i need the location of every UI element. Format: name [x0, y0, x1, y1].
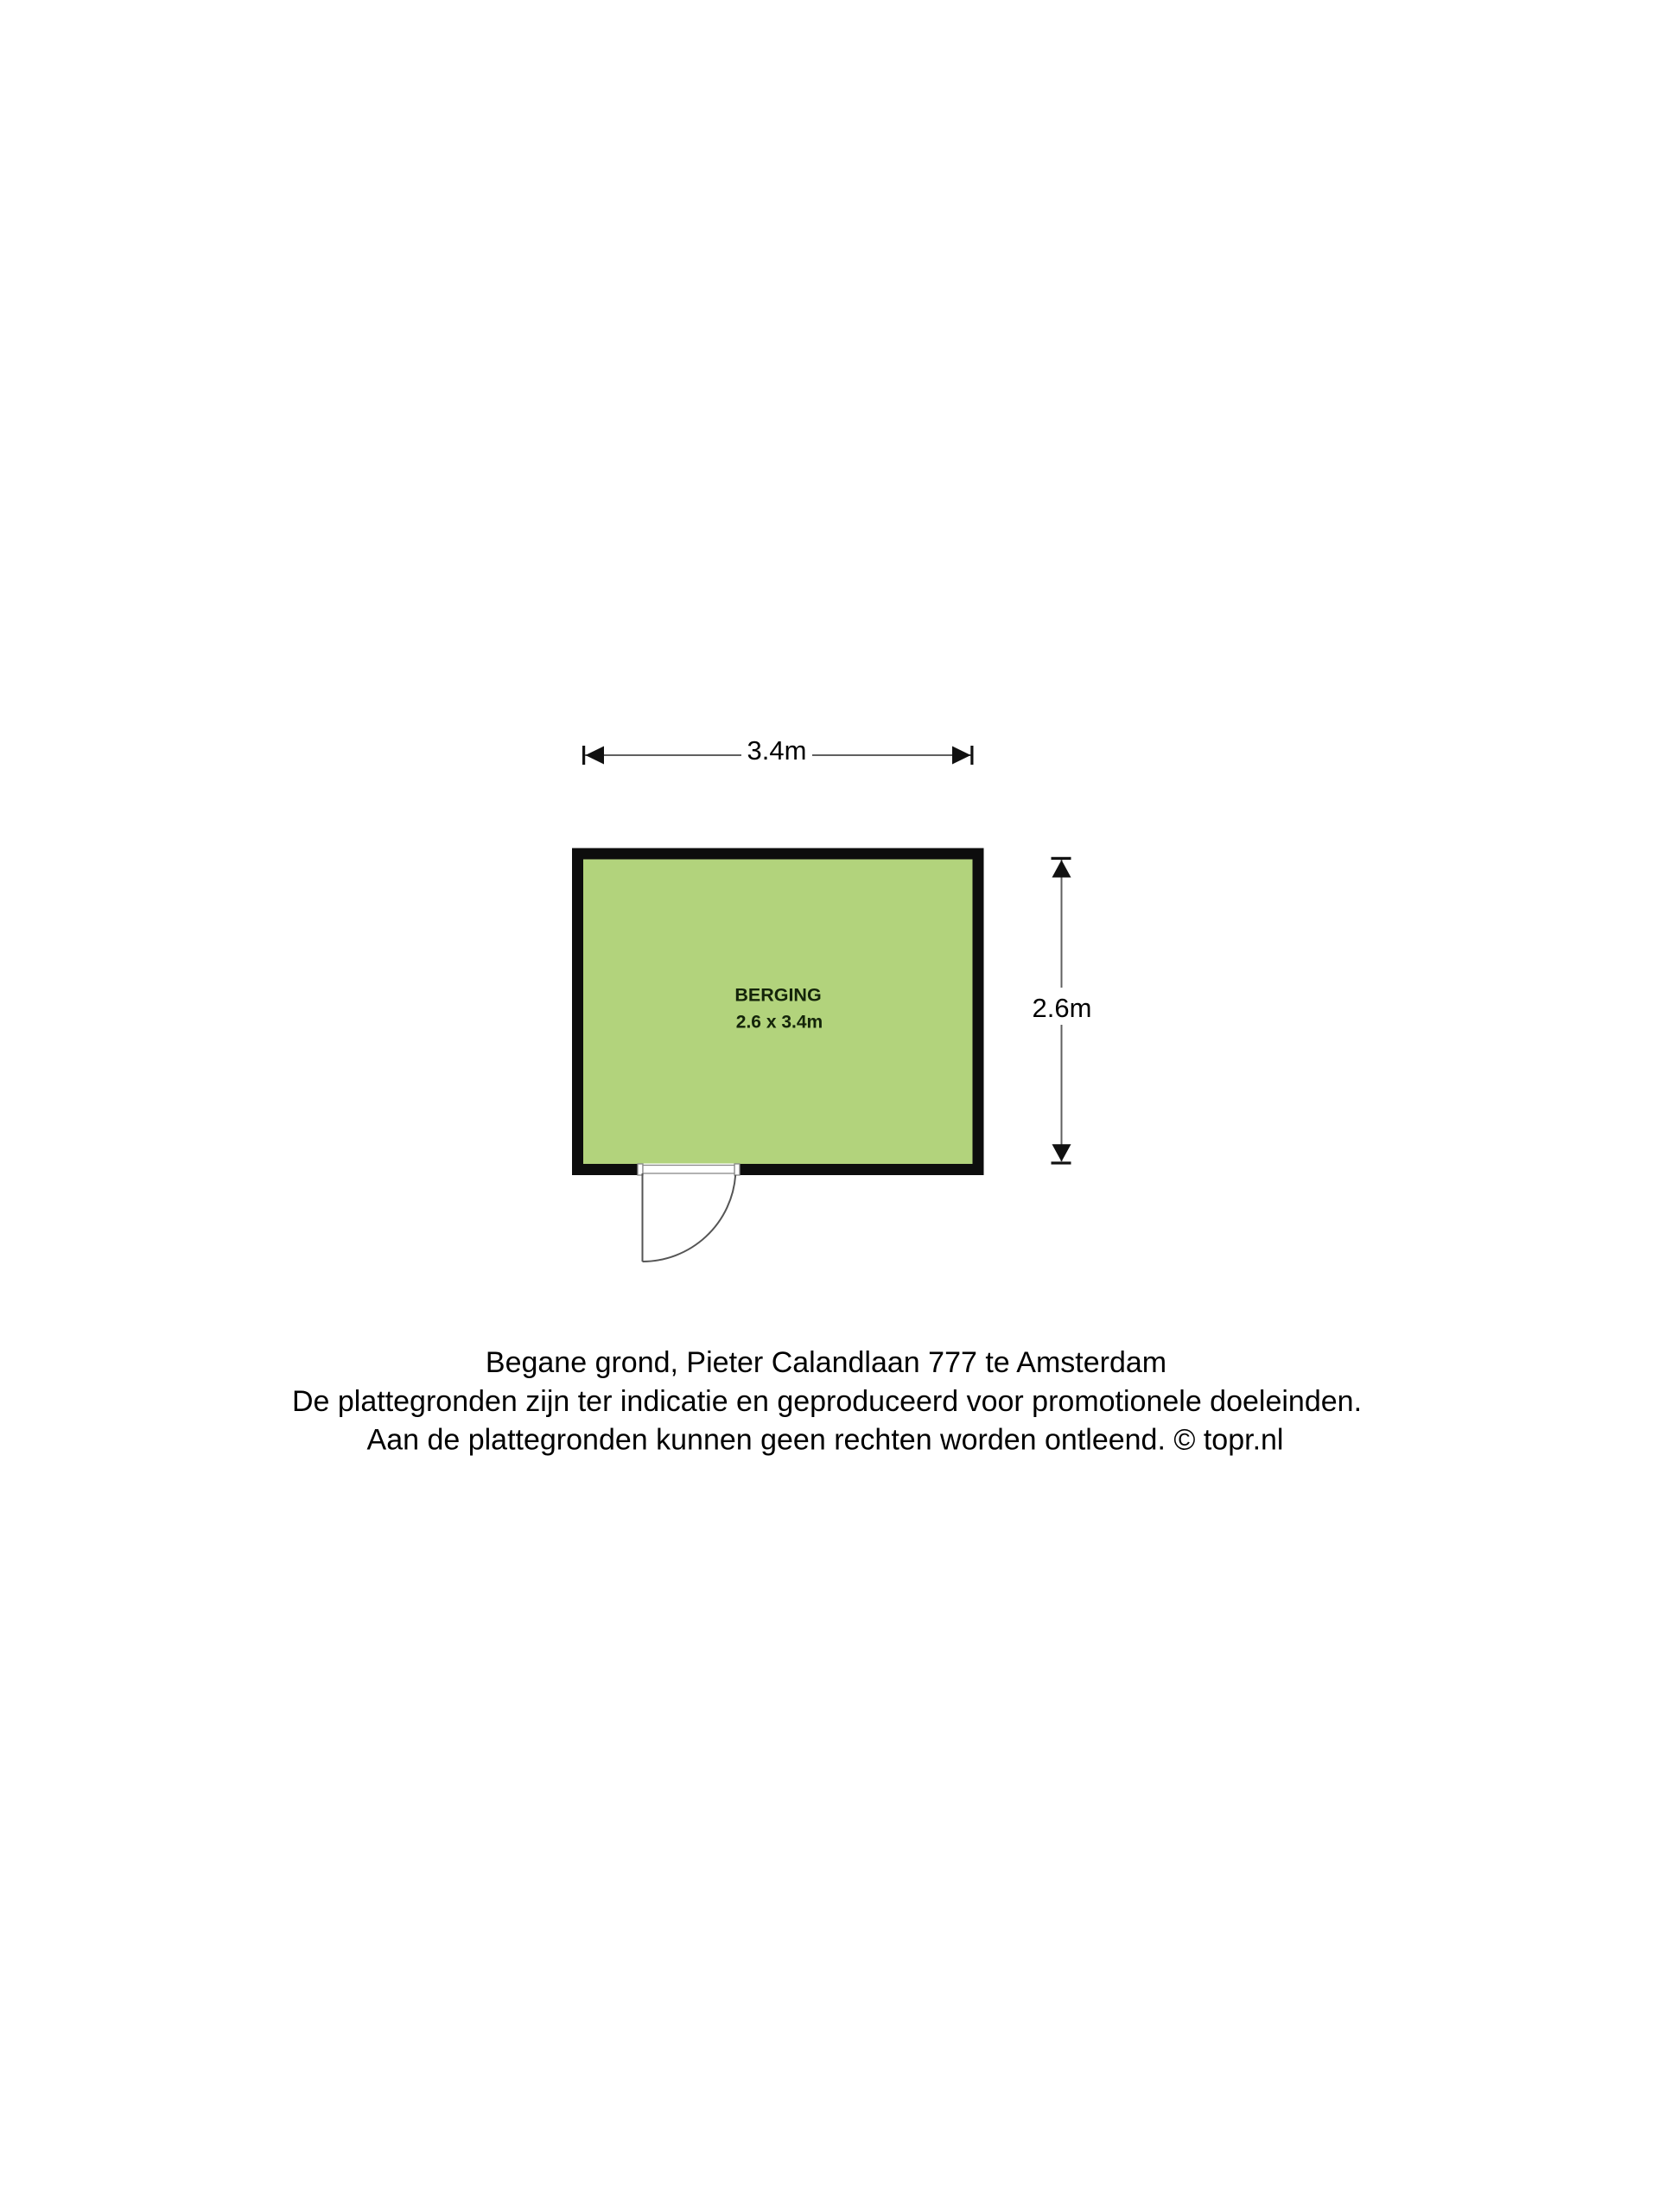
svg-text:De plattegronden zijn ter indi: De plattegronden zijn ter indicatie en g… [292, 1385, 1362, 1418]
svg-text:3.4m: 3.4m [747, 735, 807, 766]
svg-text:BERGING: BERGING [734, 984, 821, 1005]
svg-text:Begane grond, Pieter Calandlaa: Begane grond, Pieter Calandlaan 777 te A… [486, 1346, 1166, 1379]
svg-text:2.6 x 3.4m: 2.6 x 3.4m [736, 1012, 823, 1032]
svg-text:Aan de plattegronden kunnen ge: Aan de plattegronden kunnen geen rechten… [367, 1424, 1284, 1457]
svg-text:2.6m: 2.6m [1033, 993, 1092, 1023]
